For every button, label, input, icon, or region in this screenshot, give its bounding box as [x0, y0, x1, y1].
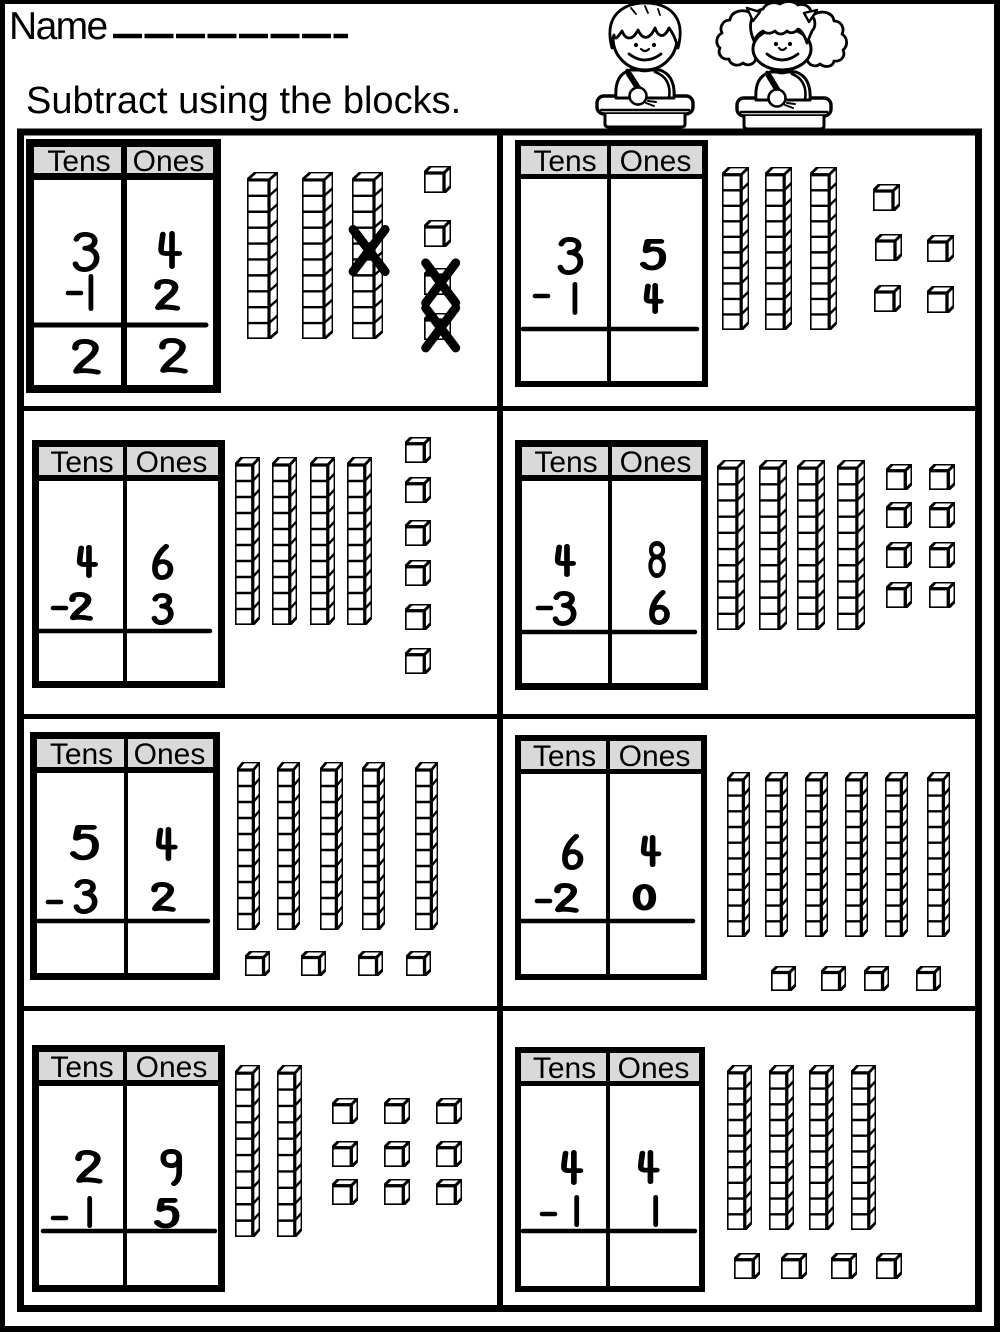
- svg-text:Ones: Ones: [619, 740, 691, 773]
- svg-text:Ones: Ones: [620, 145, 692, 178]
- svg-text:Tens: Tens: [533, 1052, 596, 1085]
- svg-text:Ones: Ones: [133, 145, 205, 178]
- svg-text:Ones: Ones: [620, 446, 692, 479]
- svg-text:Name: Name: [9, 5, 107, 48]
- svg-text:Tens: Tens: [534, 446, 597, 479]
- svg-text:Ones: Ones: [136, 446, 208, 479]
- svg-text:Tens: Tens: [50, 1051, 113, 1084]
- svg-text:Tens: Tens: [50, 446, 113, 479]
- svg-text:Ones: Ones: [136, 1051, 208, 1084]
- svg-text:Tens: Tens: [533, 145, 596, 178]
- svg-text:Tens: Tens: [47, 145, 110, 178]
- svg-text:Subtract using the blocks.: Subtract using the blocks.: [26, 80, 461, 122]
- svg-text:Tens: Tens: [533, 740, 596, 773]
- svg-text:Ones: Ones: [134, 738, 206, 771]
- svg-text:Tens: Tens: [50, 738, 113, 771]
- svg-text:Ones: Ones: [618, 1052, 690, 1085]
